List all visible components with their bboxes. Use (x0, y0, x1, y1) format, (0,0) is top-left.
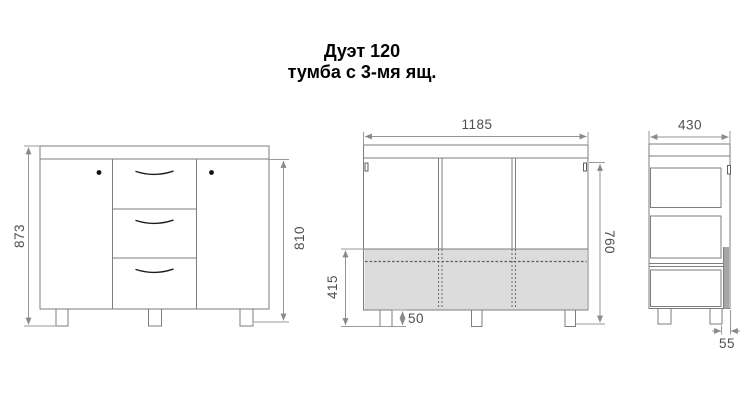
dim-810-label: 810 (292, 226, 307, 250)
dim-1185-label: 1185 (461, 117, 492, 132)
dim-760-label: 760 (602, 230, 617, 254)
side-hinge-mark (728, 166, 731, 175)
side-panel-rect-2 (651, 216, 722, 258)
side-panel-rect-1 (651, 168, 722, 208)
dim-415-label: 415 (325, 275, 340, 299)
drawer-zone-shading (365, 249, 588, 310)
carcass-hinge-right (584, 163, 587, 171)
carcass-hinge-left (365, 163, 368, 171)
front-body-outline (40, 146, 269, 309)
right-door-knob (209, 170, 214, 175)
side-leg-front (658, 309, 671, 325)
carcass-leg-right (565, 310, 576, 327)
front-view (40, 146, 269, 326)
dim-leg-height: 50 (392, 310, 424, 326)
dim-55-label: 55 (719, 336, 735, 351)
drawing-title: Дуэт 120 тумба с 3-мя ящ. (288, 41, 437, 82)
dim-50-label: 50 (408, 311, 424, 326)
technical-drawing-page: Дуэт 120 тумба с 3-мя ящ. 873 (0, 0, 745, 413)
front-leg-right (240, 309, 253, 326)
dim-depth: 430 (649, 118, 730, 145)
dim-430-label: 430 (678, 118, 702, 133)
front-leg-left (56, 309, 68, 326)
dim-carcass-width: 1185 (364, 117, 589, 145)
title-line-1: Дуэт 120 (324, 41, 400, 61)
side-view (649, 144, 731, 324)
title-line-2: тумба с 3-мя ящ. (288, 62, 437, 82)
furniture-drawing: Дуэт 120 тумба с 3-мя ящ. 873 (0, 0, 745, 413)
side-back-panel-strip (724, 247, 730, 309)
carcass-leg-center (472, 310, 483, 327)
left-door-knob (97, 170, 102, 175)
side-leg-back (710, 309, 722, 325)
dim-873-label: 873 (12, 224, 27, 248)
side-panel-rect-3 (651, 270, 722, 307)
carcass-view (364, 145, 589, 327)
front-leg-center (149, 309, 162, 326)
carcass-leg-left (380, 310, 392, 327)
